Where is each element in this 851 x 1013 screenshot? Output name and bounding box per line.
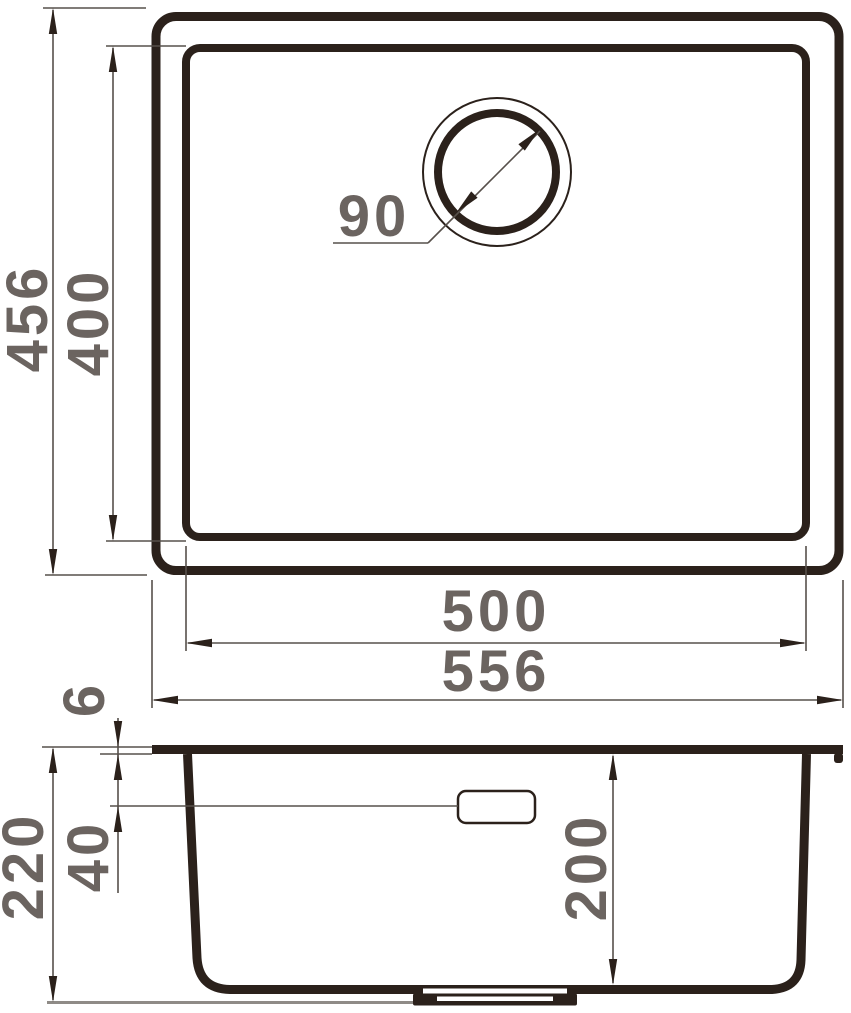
arrow-456-top: [49, 8, 57, 34]
label-456: 456: [0, 264, 60, 373]
label-6: 6: [52, 681, 117, 717]
label-40: 40: [56, 820, 121, 893]
top-view-outer-outline: [156, 17, 839, 571]
drain-fitting-slot-upper: [423, 989, 567, 994]
arrow-200-bottom: [609, 959, 617, 985]
arrow-220-top: [49, 747, 57, 773]
overflow-opening: [458, 791, 535, 823]
arrow-556-right: [817, 696, 843, 704]
label-220: 220: [0, 812, 56, 921]
arrow-6-top: [114, 721, 122, 747]
arrow-6-bottom: [114, 754, 122, 780]
arrow-500-right: [780, 639, 806, 647]
top-view-bowl-outline: [186, 48, 806, 537]
label-556: 556: [442, 639, 551, 704]
drain-fitting-slot-lower: [437, 997, 553, 1002]
arrow-500-left: [186, 639, 212, 647]
arrow-456-bottom: [49, 549, 57, 575]
arrow-400-top: [109, 46, 117, 72]
arrow-220-bottom: [49, 976, 57, 1002]
arrow-556-left: [152, 696, 178, 704]
sink-dimension-drawing: 90 456 400 500 556 6 40: [0, 0, 851, 1013]
label-200: 200: [554, 813, 619, 922]
side-view-rim: [152, 745, 843, 754]
arrow-200-top: [609, 754, 617, 780]
drain-dim-arrow-downleft: [456, 191, 478, 213]
drain-diameter-label: 90: [338, 184, 411, 249]
side-view-rim-right-lip: [834, 753, 843, 763]
label-500: 500: [442, 579, 551, 644]
drain-outer-circle: [423, 98, 571, 246]
drain-dim-arrow-upright: [518, 129, 540, 151]
label-400: 400: [56, 268, 121, 377]
drawing-canvas: 90 456 400 500 556 6 40: [0, 0, 851, 1013]
arrow-400-bottom: [109, 515, 117, 541]
side-view-bowl-profile: [188, 754, 807, 990]
